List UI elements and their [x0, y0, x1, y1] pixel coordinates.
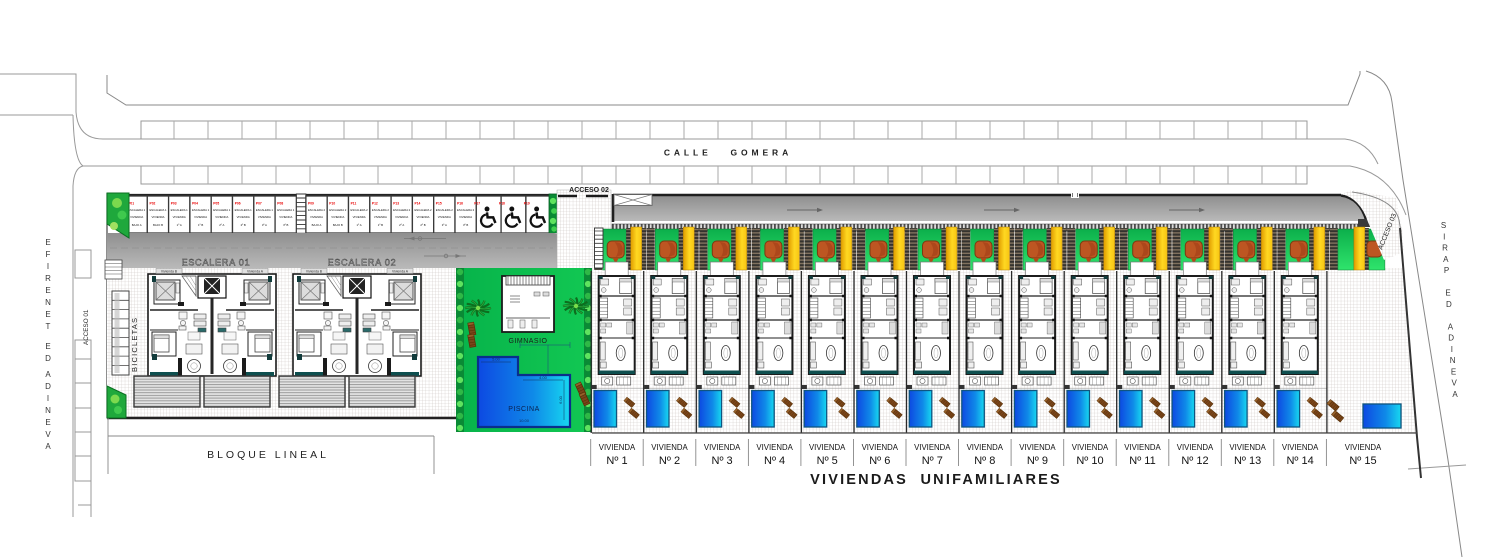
svg-text:P07: P07 — [256, 202, 262, 206]
svg-text:P18: P18 — [499, 202, 505, 206]
svg-text:T: T — [46, 322, 51, 331]
svg-text:BAJO B: BAJO B — [333, 223, 343, 227]
svg-text:Nº 15: Nº 15 — [1349, 455, 1376, 467]
svg-text:ESCALERA 01: ESCALERA 01 — [182, 258, 251, 268]
svg-text:VIVIENDA: VIVIENDA — [237, 215, 250, 219]
svg-text:ESCALERA 1: ESCALERA 1 — [277, 208, 295, 212]
svg-text:P03: P03 — [171, 202, 177, 206]
svg-text:1º A: 1º A — [357, 223, 362, 227]
svg-text:VIVIENDA: VIVIENDA — [599, 443, 636, 452]
svg-text:VIVIENDA: VIVIENDA — [1282, 443, 1319, 452]
svg-text:1º A: 1º A — [177, 223, 182, 227]
svg-text:A: A — [45, 370, 51, 379]
svg-text:ESCALERA 1: ESCALERA 1 — [192, 208, 210, 212]
svg-text:VIVIENDA: VIVIENDA — [914, 443, 951, 452]
svg-text:E: E — [45, 342, 50, 351]
svg-text:VIVIENDA: VIVIENDA — [331, 215, 344, 219]
svg-text:VIVIENDA: VIVIENDA — [1345, 443, 1382, 452]
svg-text:D: D — [45, 354, 51, 363]
svg-text:3º A: 3º A — [262, 223, 267, 227]
svg-text:ESCALERA 2: ESCALERA 2 — [351, 208, 369, 212]
svg-text:6.00: 6.00 — [558, 395, 563, 404]
svg-text:ESCALERA 02: ESCALERA 02 — [328, 258, 397, 268]
svg-text:Nº 1: Nº 1 — [606, 455, 627, 467]
svg-text:ACCESO 01: ACCESO 01 — [83, 309, 90, 345]
svg-text:A: A — [1448, 322, 1454, 331]
svg-text:I: I — [47, 394, 49, 403]
svg-text:I: I — [47, 262, 49, 271]
svg-text:P02: P02 — [150, 202, 156, 206]
svg-text:VIVIENDA: VIVIENDA — [374, 215, 387, 219]
svg-text:E: E — [45, 310, 50, 319]
svg-text:1º B: 1º B — [378, 223, 383, 227]
svg-text:GIMNASIO: GIMNASIO — [508, 338, 547, 345]
svg-text:VIVIENDA: VIVIENDA — [1124, 443, 1161, 452]
svg-text:ESCALERA 2: ESCALERA 2 — [372, 208, 390, 212]
svg-text:VIVIENDA: VIVIENDA — [862, 443, 899, 452]
svg-text:P09: P09 — [308, 202, 314, 206]
svg-text:ESCALERA 1: ESCALERA 1 — [171, 208, 189, 212]
svg-text:P17: P17 — [474, 202, 480, 206]
svg-text:I: I — [1443, 232, 1445, 241]
svg-text:Nº 7: Nº 7 — [922, 455, 943, 467]
svg-text:D: D — [45, 382, 51, 391]
svg-text:Nº 2: Nº 2 — [659, 455, 680, 467]
svg-text:VIVIENDA: VIVIENDA — [130, 215, 143, 219]
svg-text:BLOQUE LINEAL: BLOQUE LINEAL — [207, 449, 329, 461]
svg-text:P13: P13 — [393, 202, 399, 206]
svg-text:BICICLETAS: BICICLETAS — [130, 317, 139, 372]
svg-text:2º B: 2º B — [241, 223, 246, 227]
svg-text:N: N — [45, 406, 51, 415]
svg-text:Nº 12: Nº 12 — [1181, 455, 1208, 467]
svg-text:VIVIENDA: VIVIENDA — [279, 215, 292, 219]
svg-text:Nº 3: Nº 3 — [712, 455, 733, 467]
svg-text:VIVIENDA: VIVIENDA — [459, 215, 472, 219]
svg-text:3º B: 3º B — [283, 223, 288, 227]
svg-text:Nº 10: Nº 10 — [1076, 455, 1103, 467]
svg-text:Vivienda A: Vivienda A — [392, 270, 409, 274]
svg-text:VIVIENDAS UNIFAMILIARES: VIVIENDAS UNIFAMILIARES — [810, 472, 1062, 488]
svg-text:CALLE GOMERA: CALLE GOMERA — [664, 148, 792, 158]
svg-text:VIVIENDA: VIVIENDA — [438, 215, 451, 219]
svg-text:1º B: 1º B — [198, 223, 203, 227]
svg-text:P06: P06 — [235, 202, 241, 206]
svg-text:ESCALERA 2: ESCALERA 2 — [414, 208, 432, 212]
svg-text:VIVIENDA: VIVIENDA — [395, 215, 408, 219]
svg-text:VIVIENDA: VIVIENDA — [809, 443, 846, 452]
svg-text:VIVIENDA: VIVIENDA — [258, 215, 271, 219]
svg-text:VIVIENDA: VIVIENDA — [310, 215, 323, 219]
svg-text:E: E — [1445, 289, 1450, 298]
svg-text:E: E — [45, 238, 50, 247]
svg-text:ACCESO 02: ACCESO 02 — [569, 187, 609, 194]
svg-text:Vivienda B: Vivienda B — [306, 270, 323, 274]
svg-text:BAJO A: BAJO A — [132, 223, 142, 227]
svg-text:P15: P15 — [436, 202, 442, 206]
svg-text:Vivienda B: Vivienda B — [161, 270, 178, 274]
svg-text:Nº 9: Nº 9 — [1027, 455, 1048, 467]
svg-text:ESCALERA 2: ESCALERA 2 — [436, 208, 454, 212]
svg-text:4.00: 4.00 — [539, 375, 548, 380]
svg-text:F: F — [46, 250, 51, 259]
svg-text:VIVIENDA: VIVIENDA — [173, 215, 186, 219]
svg-text:VIVIENDA: VIVIENDA — [1072, 443, 1109, 452]
svg-text:A: A — [45, 442, 51, 451]
svg-text:Nº 13: Nº 13 — [1234, 455, 1261, 467]
svg-text:P11: P11 — [351, 202, 357, 206]
svg-text:PISCINA: PISCINA — [508, 406, 540, 413]
svg-text:R: R — [45, 274, 51, 283]
svg-text:VIVIENDA: VIVIENDA — [1177, 443, 1214, 452]
svg-text:VIVIENDA: VIVIENDA — [215, 215, 228, 219]
svg-text:N: N — [45, 298, 51, 307]
svg-text:V: V — [45, 430, 51, 439]
svg-text:ESCALERA 2: ESCALERA 2 — [457, 208, 475, 212]
svg-text:2º A: 2º A — [219, 223, 224, 227]
svg-text:10.00: 10.00 — [519, 418, 530, 423]
svg-text:Nº 6: Nº 6 — [869, 455, 890, 467]
svg-text:ESCALERA 1: ESCALERA 1 — [235, 208, 253, 212]
svg-text:E: E — [45, 286, 50, 295]
svg-text:D: D — [1448, 334, 1454, 343]
svg-text:ESCALERA 2: ESCALERA 2 — [308, 208, 326, 212]
svg-text:N: N — [1450, 356, 1456, 365]
svg-text:A: A — [1443, 255, 1449, 264]
svg-text:ESCALERA 1: ESCALERA 1 — [213, 208, 231, 212]
svg-text:P12: P12 — [372, 202, 378, 206]
svg-text:3º A: 3º A — [442, 223, 447, 227]
svg-text:P16: P16 — [457, 202, 463, 206]
svg-text:P04: P04 — [192, 202, 198, 206]
svg-text:2º B: 2º B — [420, 223, 425, 227]
svg-text:I: I — [1451, 345, 1453, 354]
svg-text:Nº 14: Nº 14 — [1286, 455, 1313, 467]
svg-text:VIVIENDA: VIVIENDA — [1019, 443, 1056, 452]
svg-text:A: A — [1452, 390, 1458, 399]
svg-text:D: D — [1446, 300, 1452, 309]
svg-text:VIVIENDA: VIVIENDA — [704, 443, 741, 452]
svg-text:VIVIENDA: VIVIENDA — [353, 215, 366, 219]
svg-text:P: P — [1444, 266, 1449, 275]
svg-text:VIVIENDA: VIVIENDA — [151, 215, 164, 219]
svg-text:Nº 11: Nº 11 — [1129, 455, 1155, 467]
svg-text:ESCALERA 2: ESCALERA 2 — [329, 208, 347, 212]
svg-text:VIVIENDA: VIVIENDA — [1229, 443, 1266, 452]
svg-text:P05: P05 — [213, 202, 219, 206]
svg-text:P19: P19 — [524, 202, 530, 206]
svg-text:VIVIENDA: VIVIENDA — [416, 215, 429, 219]
svg-text:BAJO A: BAJO A — [312, 223, 322, 227]
svg-text:E: E — [1451, 368, 1456, 377]
svg-text:E: E — [45, 418, 50, 427]
svg-text:Nº 4: Nº 4 — [764, 455, 785, 467]
svg-text:S: S — [1441, 221, 1446, 230]
svg-text:VIVIENDA: VIVIENDA — [194, 215, 207, 219]
svg-text:VIVIENDA: VIVIENDA — [967, 443, 1004, 452]
svg-text:Nº 5: Nº 5 — [817, 455, 838, 467]
svg-text:VIVIENDA: VIVIENDA — [651, 443, 688, 452]
svg-text:ESCALERA 1: ESCALERA 1 — [256, 208, 274, 212]
svg-text:5.00: 5.00 — [492, 357, 501, 362]
svg-text:2º A: 2º A — [399, 223, 404, 227]
svg-text:3º B: 3º B — [463, 223, 468, 227]
svg-text:ESCALERA 2: ESCALERA 2 — [393, 208, 411, 212]
svg-text:P10: P10 — [329, 202, 335, 206]
svg-text:ESCALERA 1: ESCALERA 1 — [149, 208, 167, 212]
svg-text:Nº 8: Nº 8 — [974, 455, 995, 467]
svg-text:R: R — [1442, 244, 1448, 253]
svg-text:V: V — [1452, 379, 1458, 388]
svg-text:VIVIENDA: VIVIENDA — [756, 443, 793, 452]
svg-text:P08: P08 — [277, 202, 283, 206]
svg-text:ESCALERA 1: ESCALERA 1 — [128, 208, 146, 212]
svg-text:Vivienda A: Vivienda A — [247, 270, 264, 274]
svg-text:BAJO B: BAJO B — [153, 223, 163, 227]
svg-text:P14: P14 — [415, 202, 421, 206]
